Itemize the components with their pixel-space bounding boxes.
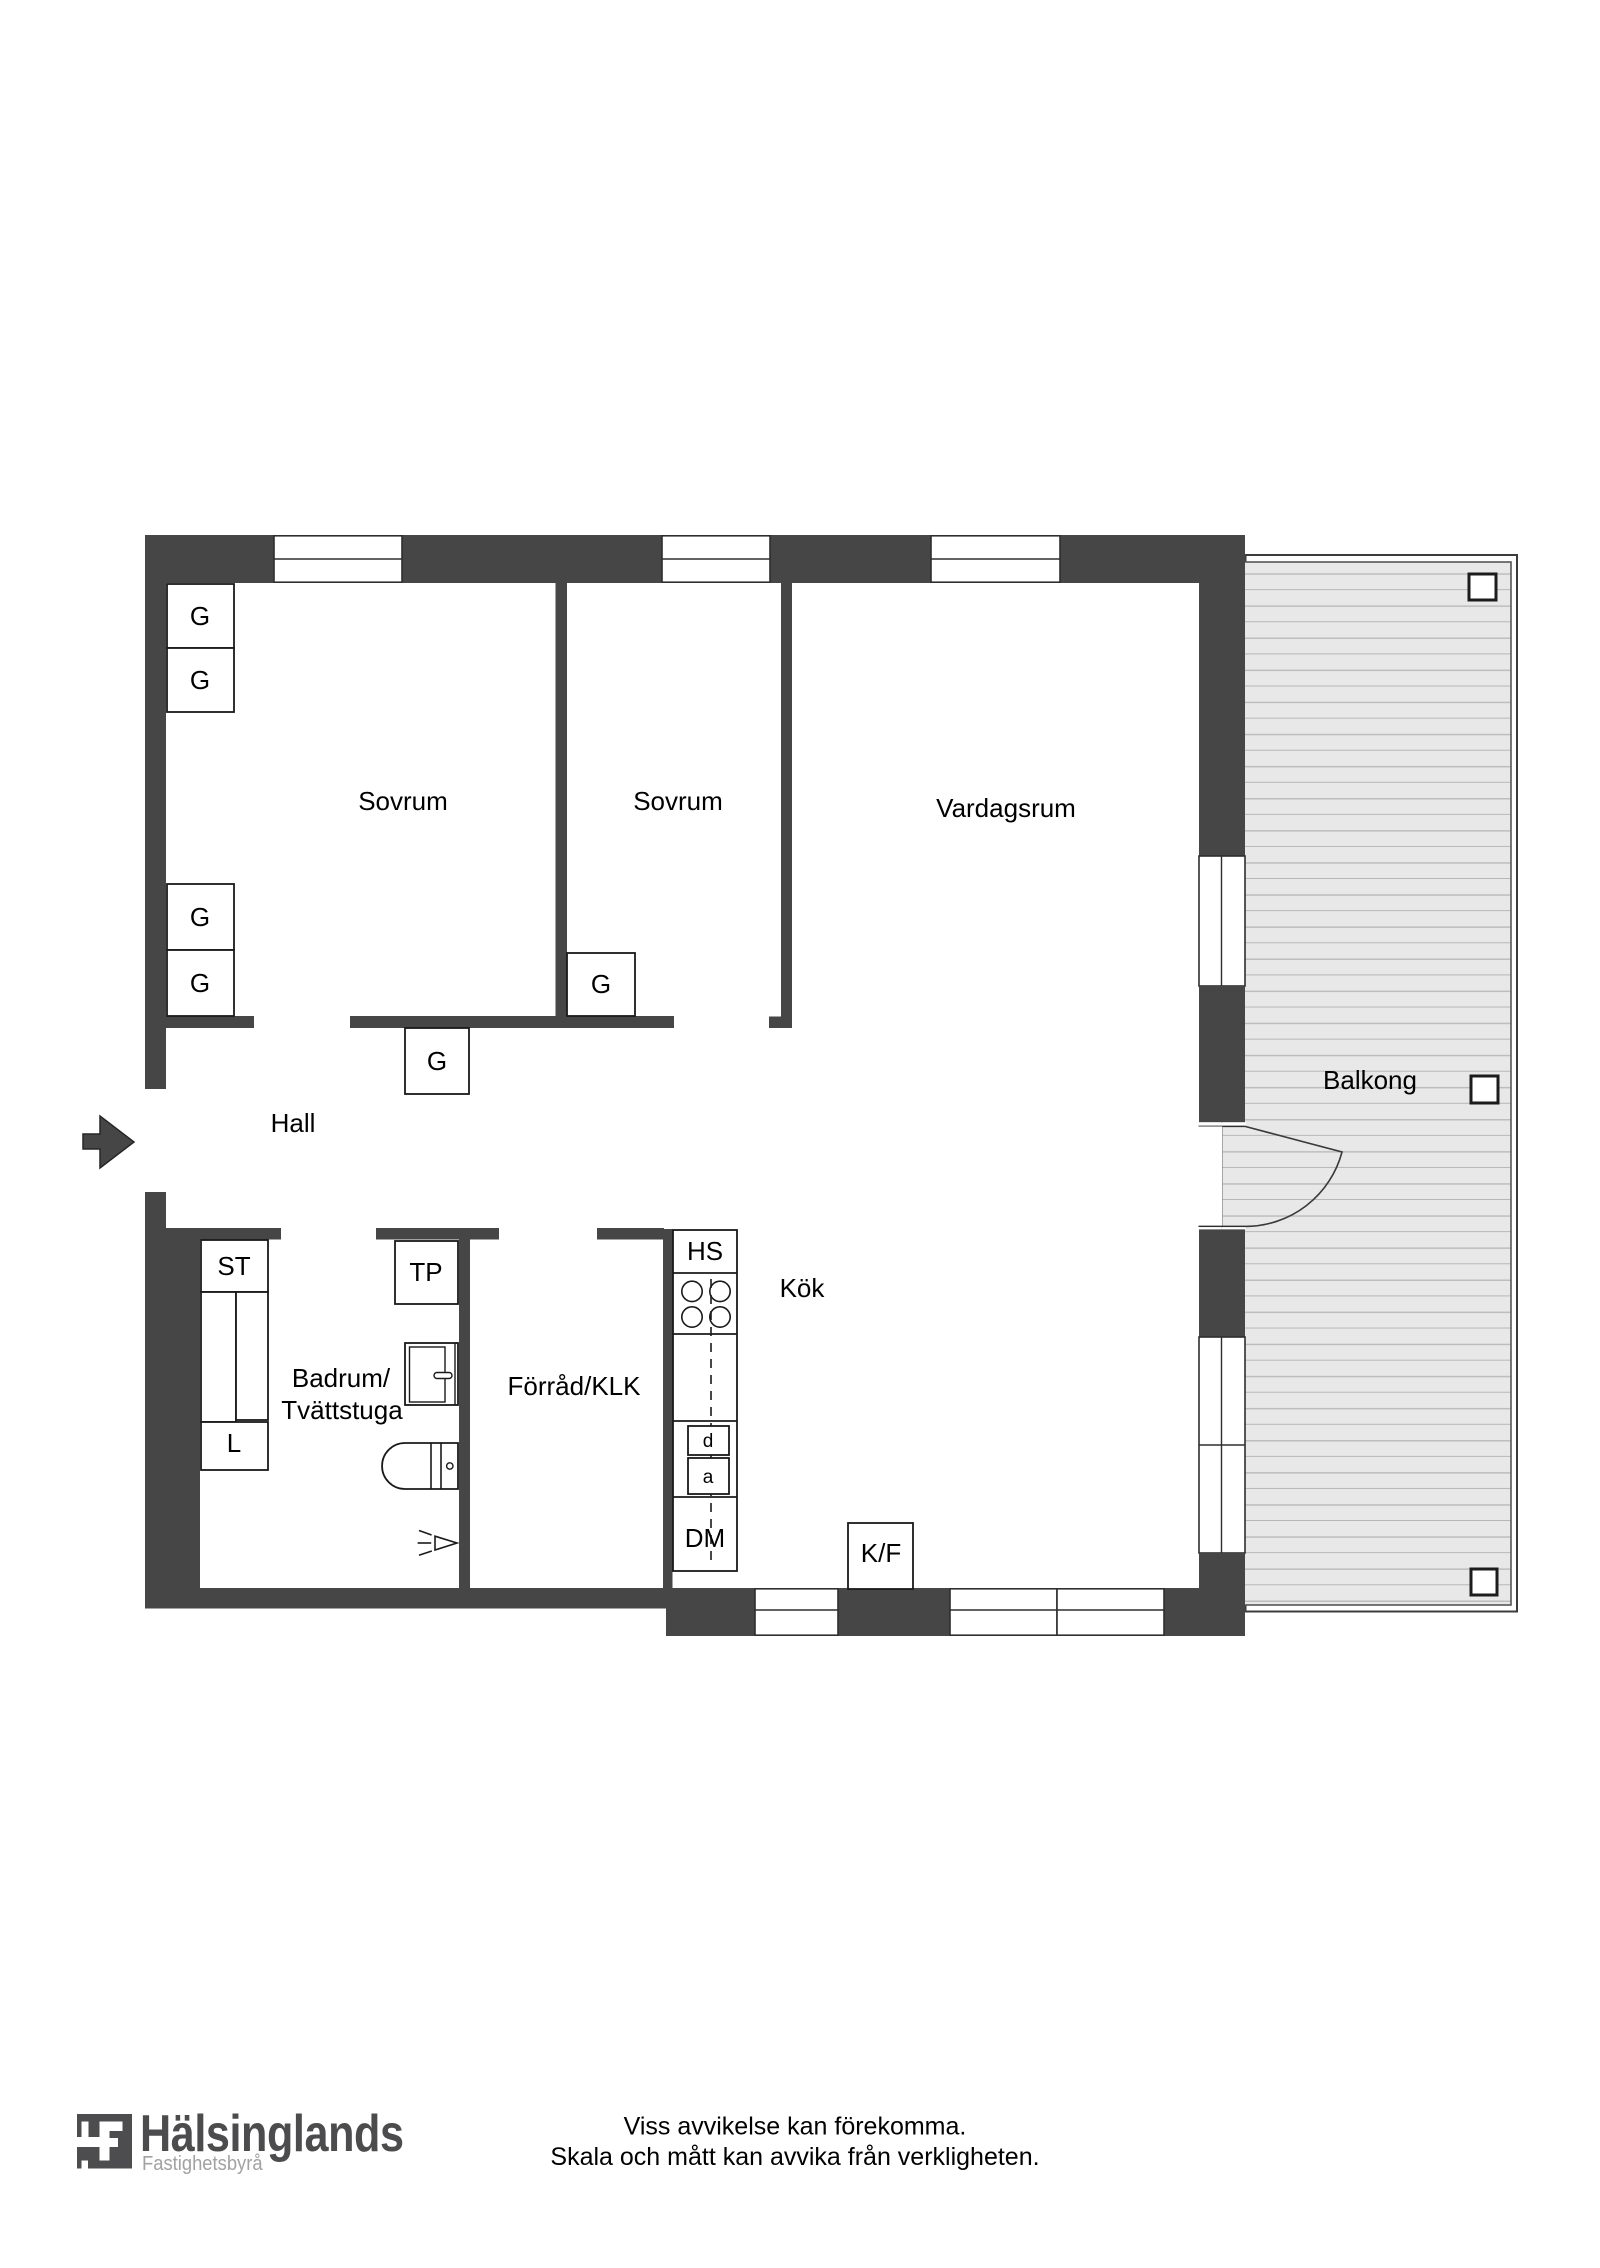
svg-text:Sovrum: Sovrum (633, 786, 723, 816)
svg-text:Vardagsrum: Vardagsrum (936, 793, 1076, 823)
svg-text:G: G (190, 601, 210, 631)
svg-text:Badrum/: Badrum/ (292, 1363, 391, 1393)
svg-text:Förråd/KLK: Förråd/KLK (508, 1371, 642, 1401)
svg-text:Viss avvikelse kan förekomma.: Viss avvikelse kan förekomma. (624, 2113, 967, 2141)
svg-text:Tvättstuga: Tvättstuga (281, 1395, 403, 1425)
svg-text:Hall: Hall (271, 1108, 316, 1138)
svg-text:DM: DM (685, 1523, 725, 1553)
svg-text:G: G (591, 969, 611, 999)
svg-text:a: a (703, 1467, 714, 1488)
svg-text:Skala och mått kan avvika från: Skala och mått kan avvika från verklighe… (550, 2143, 1039, 2171)
svg-text:G: G (190, 968, 210, 998)
svg-text:K/F: K/F (861, 1538, 901, 1568)
svg-text:ST: ST (217, 1251, 250, 1281)
svg-text:L: L (227, 1428, 241, 1458)
svg-text:G: G (190, 902, 210, 932)
svg-text:HS: HS (687, 1236, 723, 1266)
svg-text:Fastighetsbyrå: Fastighetsbyrå (142, 2153, 263, 2175)
svg-text:d: d (703, 1431, 714, 1452)
svg-text:Kök: Kök (780, 1273, 826, 1303)
svg-text:G: G (427, 1046, 447, 1076)
svg-text:TP: TP (409, 1257, 442, 1287)
svg-text:Sovrum: Sovrum (358, 786, 448, 816)
svg-text:G: G (190, 665, 210, 695)
svg-text:Balkong: Balkong (1323, 1065, 1417, 1095)
